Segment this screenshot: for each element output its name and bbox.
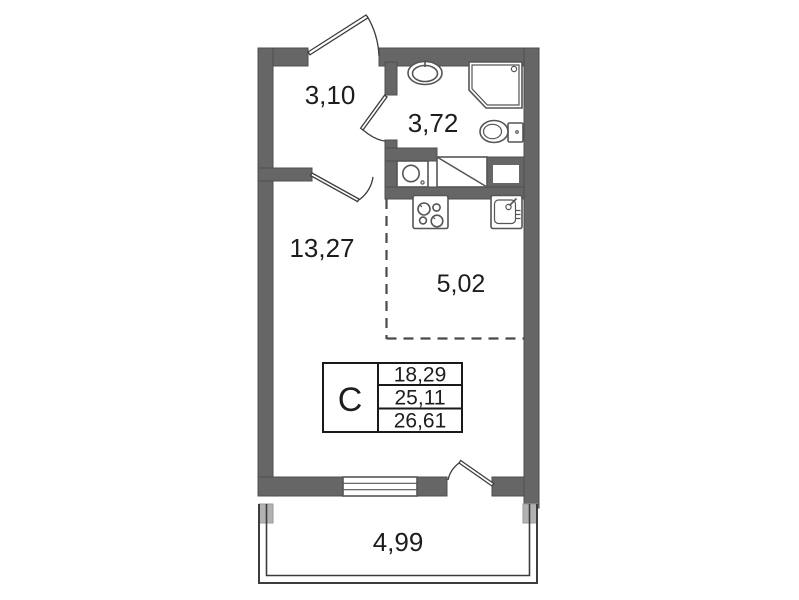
toilet-icon bbox=[480, 121, 523, 143]
wall-right bbox=[524, 48, 539, 508]
wall-bathroom-bottom bbox=[385, 148, 437, 161]
bathroom-door-swing-arc bbox=[363, 130, 385, 141]
entrance-door bbox=[308, 15, 379, 56]
washing-machine-icon bbox=[397, 161, 428, 187]
wall-left bbox=[258, 48, 273, 496]
area-value-apartment: 25,11 bbox=[395, 387, 446, 410]
area-value-total: 26,61 bbox=[394, 410, 447, 433]
kitchen-sink-icon bbox=[491, 196, 522, 229]
stove-icon bbox=[413, 196, 448, 229]
living-room-door-swing-arc bbox=[359, 177, 373, 200]
hallway-area-label: 3,10 bbox=[305, 80, 356, 110]
living-room-door-leaf bbox=[311, 173, 359, 202]
unit-type-letter: С bbox=[338, 381, 363, 419]
floorplan-image: С 18,29 25,11 26,61 3,10 3,72 13,27 5,02… bbox=[0, 0, 799, 600]
balcony-area-label: 4,99 bbox=[373, 527, 424, 557]
bathroom-area-label: 3,72 bbox=[408, 108, 459, 138]
bathroom-door-leaf bbox=[361, 95, 387, 130]
window-frame bbox=[343, 477, 417, 496]
wall-bottom-middle bbox=[417, 477, 447, 496]
entrance-door-swing-arc bbox=[367, 16, 379, 56]
area-table: С 18,29 25,11 26,61 bbox=[323, 363, 462, 433]
area-value-living: 18,29 bbox=[394, 364, 447, 387]
window bbox=[343, 477, 417, 496]
entrance-door-leaf bbox=[308, 15, 368, 55]
walls bbox=[258, 48, 539, 523]
kitchen-zone-area-label: 5,02 bbox=[437, 270, 486, 298]
wall-middle-upper bbox=[385, 62, 397, 95]
duct-shaft-icon bbox=[437, 157, 487, 187]
floorplan-svg: С 18,29 25,11 26,61 3,10 3,72 13,27 5,02… bbox=[0, 0, 799, 600]
shower-icon bbox=[469, 62, 522, 108]
balcony-door bbox=[448, 461, 494, 487]
wall-hallway-bottom bbox=[258, 168, 312, 181]
wall-bottom-right bbox=[492, 477, 524, 496]
wall-bottom-left bbox=[258, 477, 343, 496]
bathroom-door bbox=[361, 95, 387, 141]
balcony-door-leaf bbox=[459, 461, 494, 487]
vent-shaft-opening bbox=[493, 165, 519, 183]
shower-tray-outer bbox=[469, 62, 522, 108]
balcony-door-swing-arc bbox=[448, 463, 459, 480]
living-room-door bbox=[311, 173, 373, 202]
living-room-area-label: 13,27 bbox=[289, 233, 354, 263]
